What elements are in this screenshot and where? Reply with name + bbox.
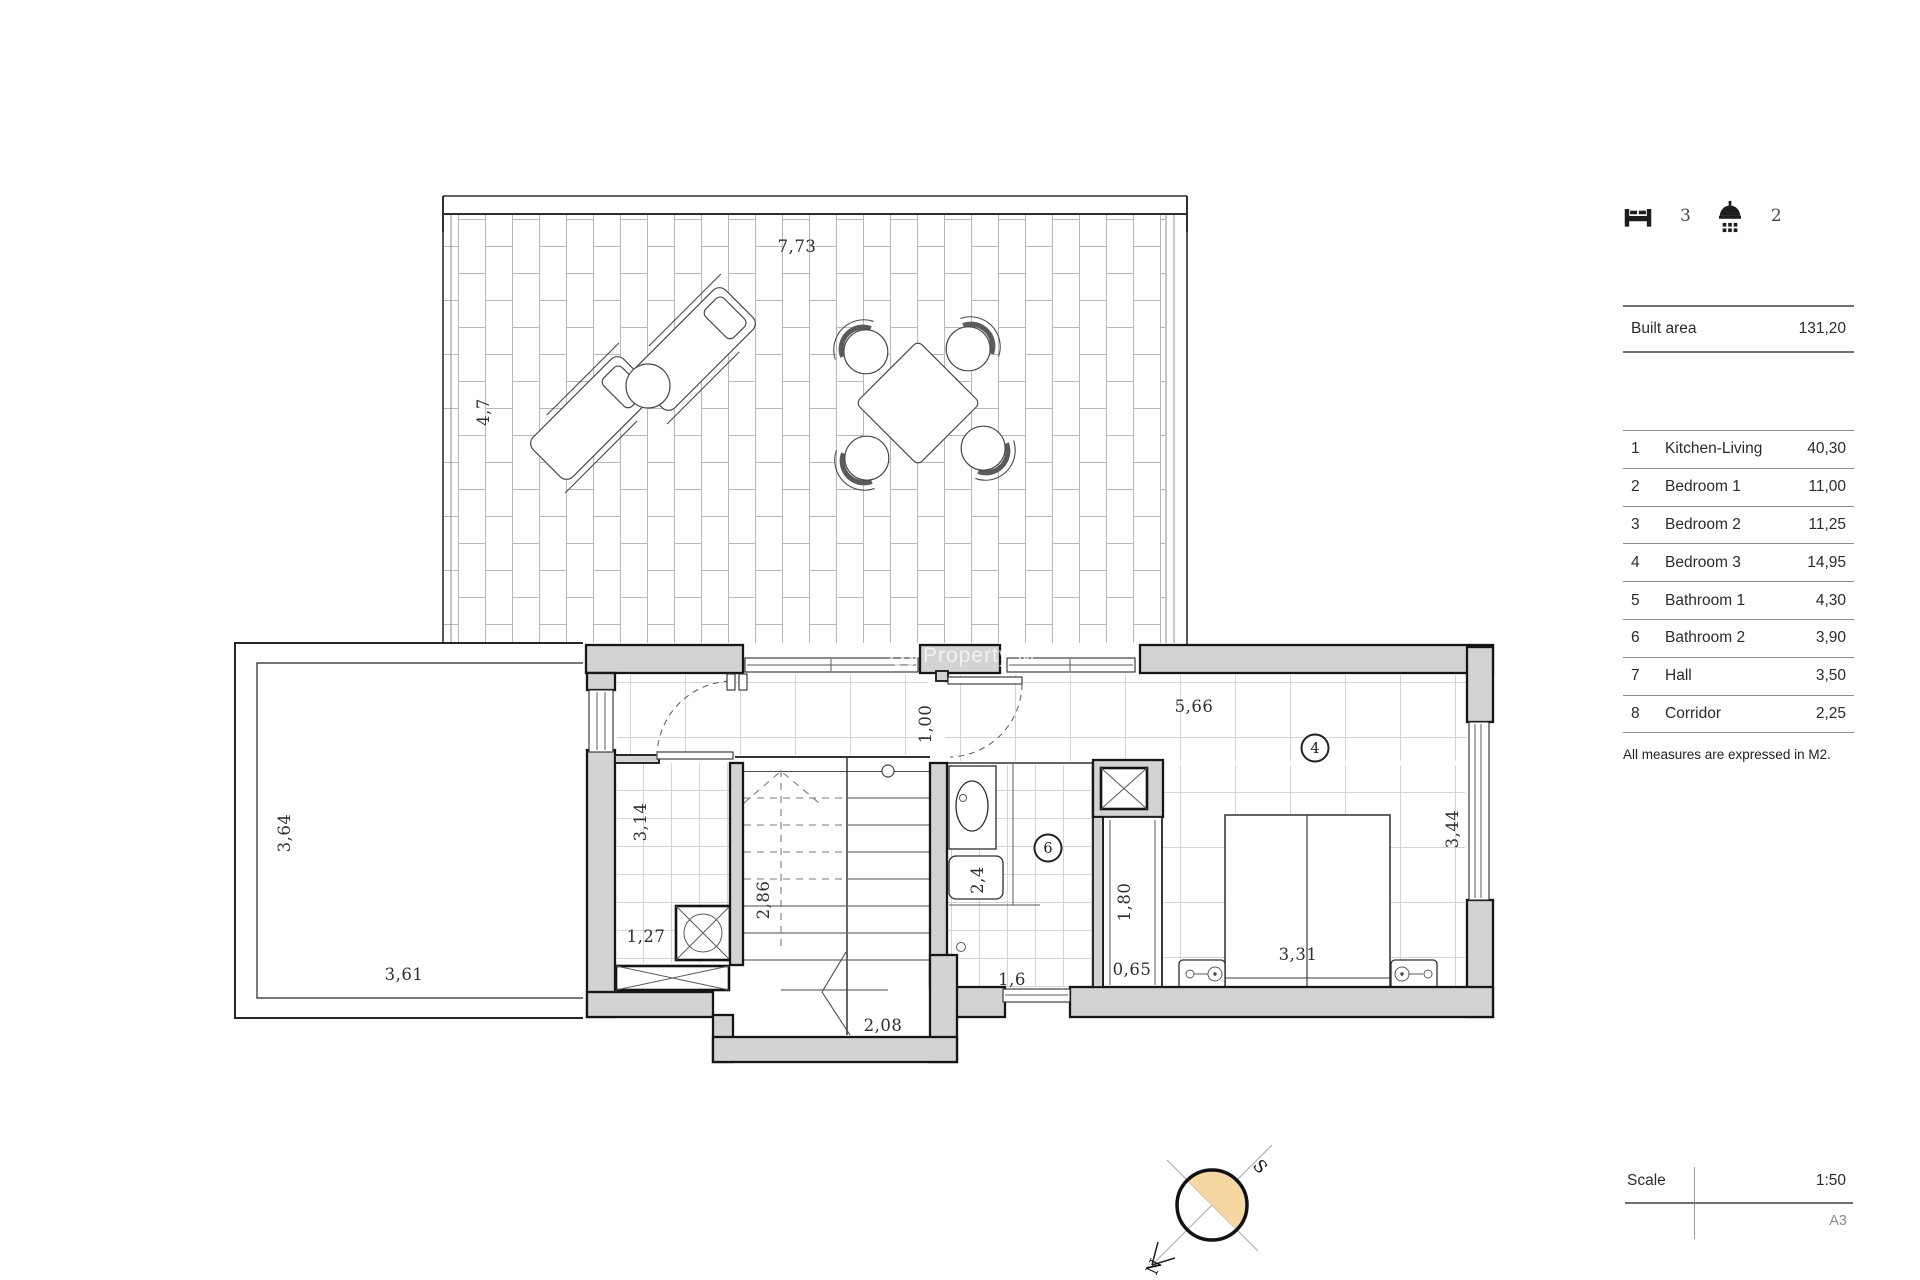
scale-value: 1:50	[1700, 1172, 1846, 1190]
window-east	[1469, 722, 1489, 900]
room-number: 4	[1623, 554, 1665, 572]
window-west	[589, 690, 613, 752]
room-number: 8	[1623, 705, 1665, 723]
table-row: 5 Bathroom 1 4,30	[1623, 581, 1854, 619]
bedrooms-count: 3	[1680, 206, 1691, 226]
room-area: 40,30	[1807, 440, 1854, 458]
bathrooms-count: 2	[1771, 206, 1782, 226]
table-row: 6 Bathroom 2 3,90	[1623, 619, 1854, 657]
dim-porch-height: 3,64	[275, 814, 294, 853]
door-leaf-bath	[948, 677, 1022, 684]
dim-bath-depth: 2,4	[968, 866, 987, 894]
room-name: Kitchen-Living	[1665, 440, 1807, 458]
room-number: 2	[1623, 478, 1665, 496]
room-area: 3,50	[1816, 667, 1854, 685]
room-name: Bedroom 3	[1665, 554, 1807, 572]
table-row: 7 Hall 3,50	[1623, 657, 1854, 695]
dim-terrace-width: 7,73	[778, 237, 817, 256]
dim-porch-width: 3,61	[385, 965, 424, 984]
room-number: 3	[1623, 516, 1665, 534]
dim-stair-width: 2,08	[864, 1016, 903, 1035]
room-number: 5	[1623, 592, 1665, 610]
dim-closet-width: 0,65	[1113, 960, 1152, 979]
compass-south-label: S	[1248, 1156, 1271, 1178]
sink-basin	[956, 781, 988, 831]
table-row: 2 Bedroom 1 11,00	[1623, 468, 1854, 506]
newel-post	[882, 765, 894, 777]
dim-closet-height: 1,80	[1115, 883, 1134, 922]
room-area: 14,95	[1807, 554, 1854, 572]
room-name: Hall	[1665, 667, 1816, 685]
dim-corridor-width: 1,00	[916, 705, 935, 744]
table-row: 1 Kitchen-Living 40,30	[1623, 430, 1854, 468]
watermark: W Property M	[891, 641, 1036, 667]
compass-rose: N S	[1142, 1145, 1272, 1278]
bed-icon	[1623, 204, 1653, 228]
room-name: Bathroom 2	[1665, 629, 1816, 647]
table-row: 4 Bedroom 3 14,95	[1623, 543, 1854, 581]
room-area: 4,30	[1816, 592, 1854, 610]
dim-room5-width: 1,27	[627, 927, 666, 946]
marker-bathroom2: 6	[1043, 841, 1052, 857]
built-area-row: Built area 131,20	[1623, 307, 1854, 351]
room-number: 1	[1623, 440, 1665, 458]
table-row: 3 Bedroom 2 11,25	[1623, 506, 1854, 544]
built-area-value: 131,20	[1799, 320, 1846, 338]
units-footnote: All measures are expressed in M2.	[1623, 747, 1883, 762]
scale-rule	[1625, 1202, 1853, 1204]
dim-bedroom3-width: 5,66	[1175, 697, 1214, 716]
dim-room5-height: 3,14	[631, 803, 650, 842]
room-name: Bedroom 1	[1665, 478, 1808, 496]
built-area-label: Built area	[1631, 320, 1696, 338]
side-table	[626, 364, 670, 408]
room-name: Bathroom 1	[1665, 592, 1816, 610]
room-area: 11,00	[1808, 478, 1854, 496]
room-number: 6	[1623, 629, 1665, 647]
watermark-logo-letter: W	[897, 642, 918, 665]
dim-stair-height: 2,86	[754, 881, 773, 920]
marker-bedroom3: 4	[1310, 741, 1319, 757]
summary-icons-row: 3 2	[1623, 197, 1803, 235]
dim-bed-width: 3,31	[1279, 945, 1318, 964]
room-name: Bedroom 2	[1665, 516, 1808, 534]
scale-label: Scale	[1627, 1172, 1666, 1190]
table-row: 8 Corridor 2,25	[1623, 695, 1854, 733]
room-area: 2,25	[1816, 705, 1854, 723]
dim-terrace-height: 4,7	[474, 398, 493, 426]
door-leaf-hall	[657, 752, 733, 759]
floor-plan-page: W Property M 7,73 4,7 3,64 3,61 3,14 1,2…	[0, 0, 1920, 1280]
built-area-table: Built area 131,20	[1623, 305, 1854, 353]
rooms-table: 1 Kitchen-Living 40,30 2 Bedroom 1 11,00…	[1623, 430, 1854, 733]
sheet-size: A3	[1780, 1213, 1847, 1229]
compass-north-label: N	[1142, 1256, 1166, 1278]
shower-icon	[1717, 200, 1743, 233]
room-area: 11,25	[1808, 516, 1854, 534]
dim-bath-window: 1,6	[998, 970, 1026, 989]
watermark-text: Property M	[923, 644, 1036, 667]
room-area: 3,90	[1816, 629, 1854, 647]
room-number: 7	[1623, 667, 1665, 685]
room-name: Corridor	[1665, 705, 1816, 723]
dim-bedroom3-height: 3,44	[1443, 810, 1462, 849]
